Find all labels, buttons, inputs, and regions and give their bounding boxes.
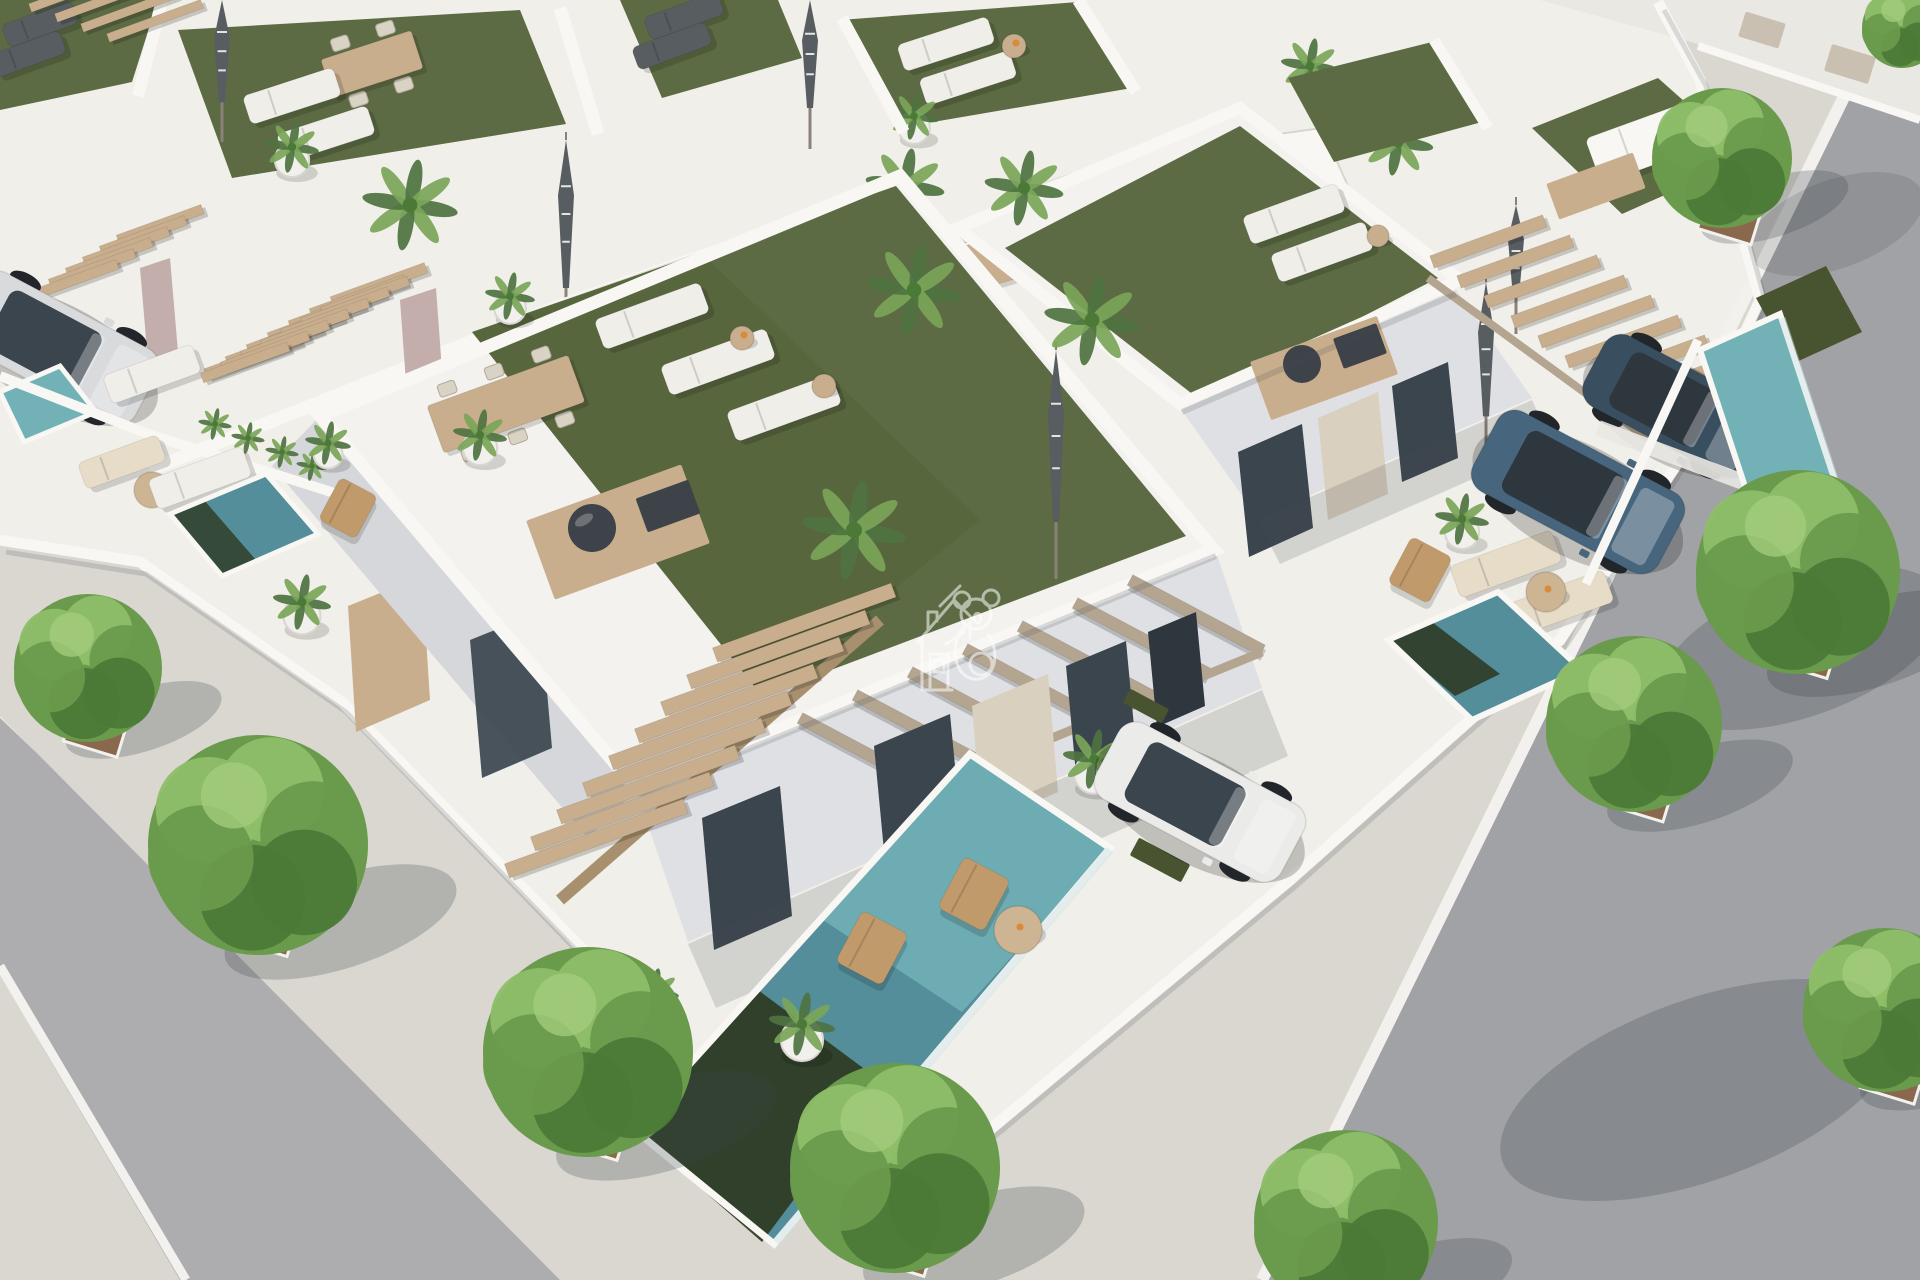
palm-crown: [212, 421, 218, 427]
palm-crown: [846, 522, 862, 538]
palm-crown: [245, 435, 251, 441]
palm-crown: [1018, 182, 1030, 194]
palm-crown: [506, 292, 514, 300]
grill-dome-body: [568, 504, 616, 552]
palm-crown: [910, 112, 918, 120]
palm-crown: [403, 198, 418, 213]
palm-crown: [324, 439, 331, 446]
drink: [1017, 924, 1024, 931]
palm-crown: [309, 463, 315, 469]
table-top: [1002, 34, 1026, 58]
scene-canvas: Aerial 3D render of a modern white villa…: [0, 0, 1920, 1280]
palm-crown: [279, 449, 285, 455]
tree-canopy-highlight: [1298, 1153, 1353, 1208]
palm-crown: [1306, 62, 1315, 71]
palm-crown: [288, 143, 296, 151]
table-top: [1526, 572, 1566, 612]
palm-crown: [797, 1019, 807, 1029]
tree-canopy-highlight: [50, 613, 94, 657]
drink: [1013, 40, 1020, 47]
drink: [1545, 586, 1552, 593]
tree-canopy-highlight: [840, 1089, 903, 1152]
palm-crown: [298, 598, 307, 607]
tree-canopy-highlight: [1745, 495, 1806, 556]
tree-canopy-highlight: [1588, 658, 1641, 711]
tree-canopy-highlight: [201, 763, 267, 829]
render-image: Aerial 3D render of a modern white villa…: [0, 0, 1920, 1280]
drink: [741, 332, 748, 339]
tree-canopy-highlight: [1686, 106, 1728, 148]
table-top: [1367, 225, 1389, 247]
palm-crown: [1085, 313, 1100, 328]
grill-dome: [568, 504, 616, 552]
table-top: [730, 326, 754, 350]
palm-crown: [907, 283, 922, 298]
tree-canopy-highlight: [1842, 949, 1891, 998]
palm-crown: [476, 431, 484, 439]
table-top: [812, 374, 836, 398]
scene-layers: [0, 0, 1920, 1280]
tree-canopy-highlight: [533, 973, 596, 1036]
palm-crown: [1458, 515, 1466, 523]
table-top: [994, 906, 1042, 954]
